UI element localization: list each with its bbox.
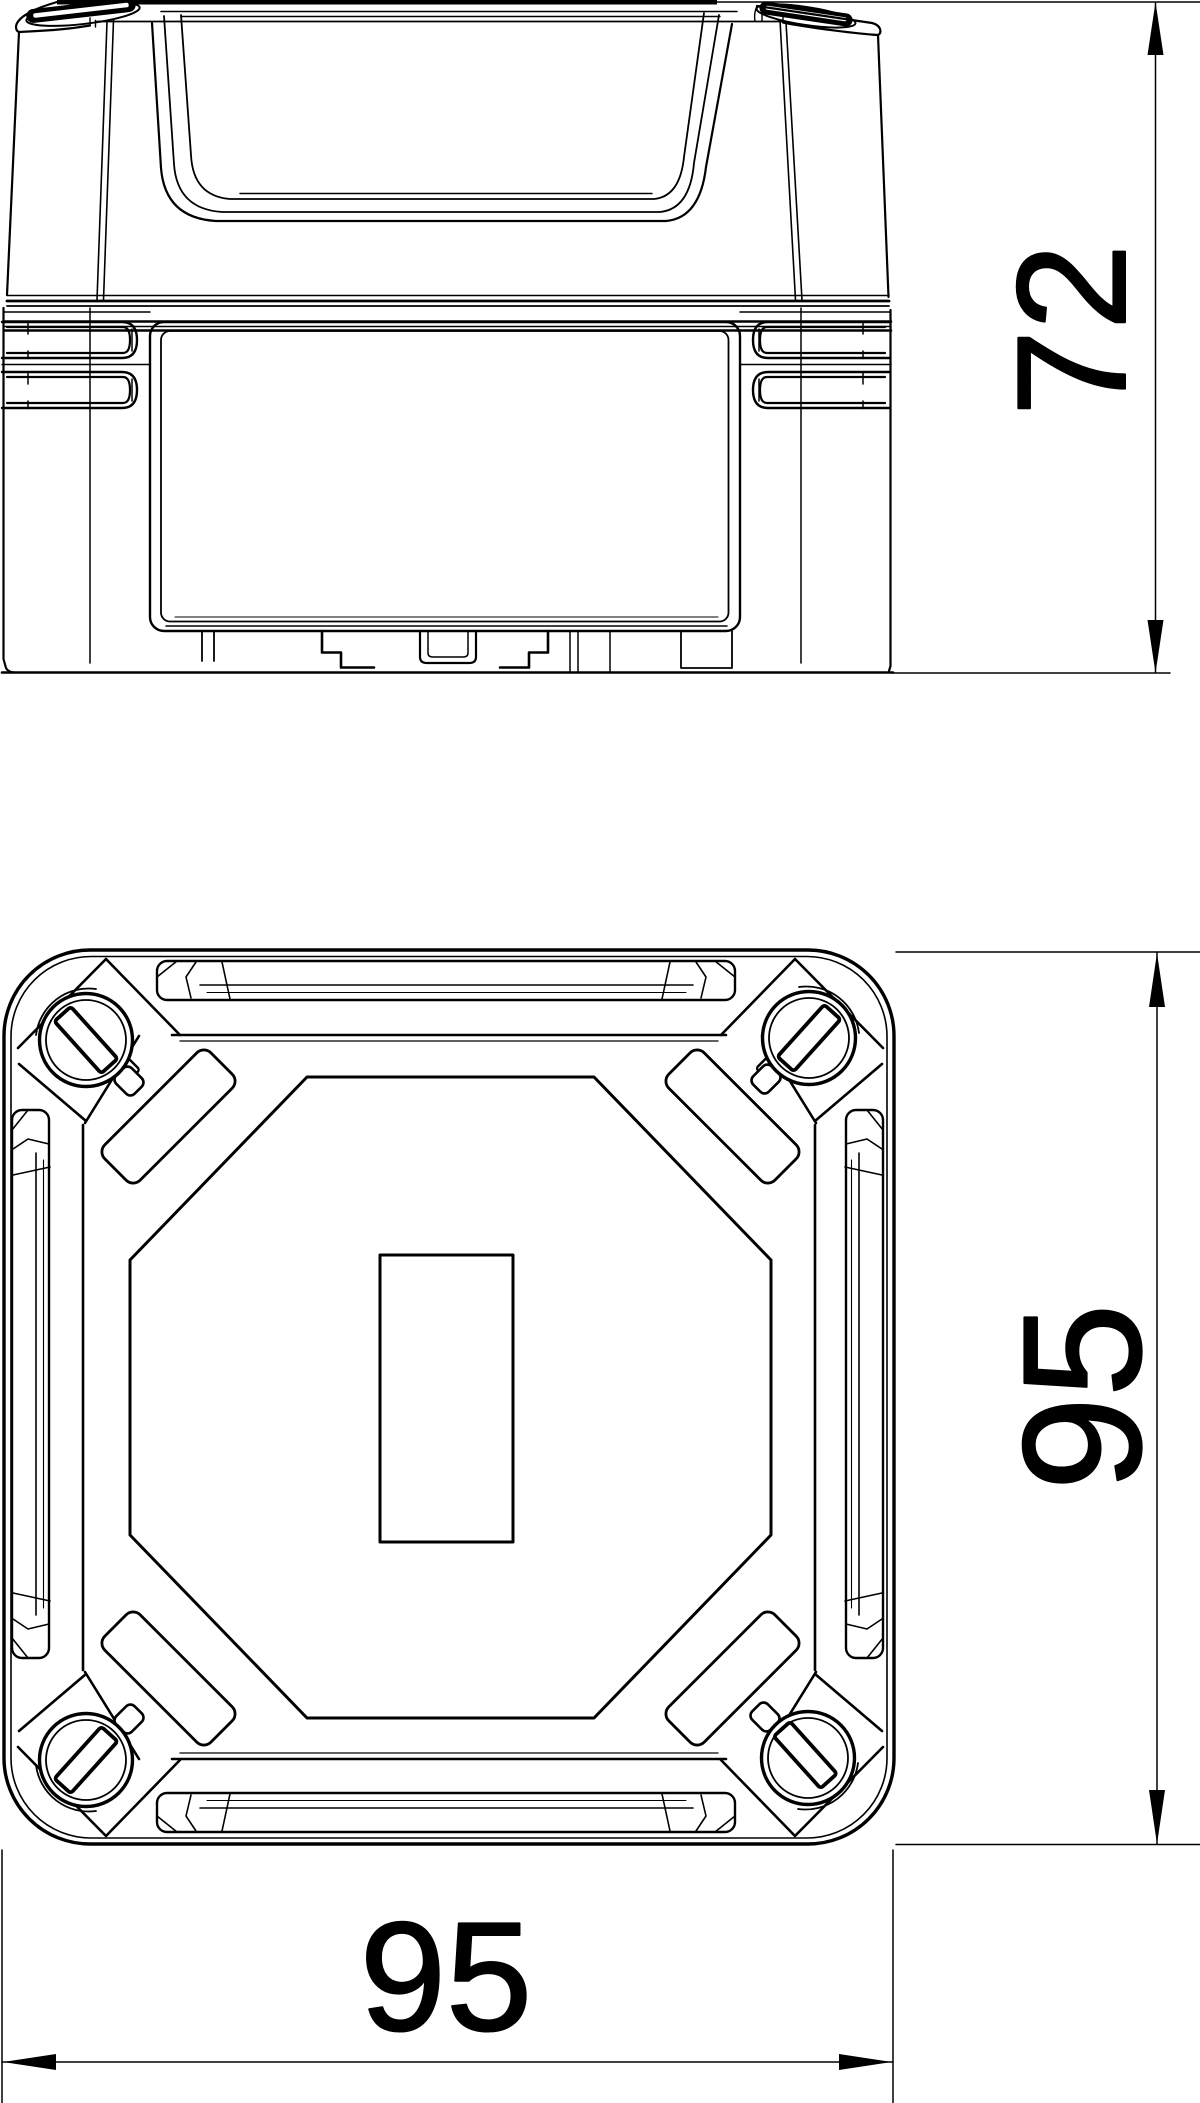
svg-text:95: 95 bbox=[988, 1304, 1176, 1491]
svg-text:72: 72 bbox=[985, 244, 1158, 416]
svg-text:95: 95 bbox=[360, 1890, 532, 2063]
